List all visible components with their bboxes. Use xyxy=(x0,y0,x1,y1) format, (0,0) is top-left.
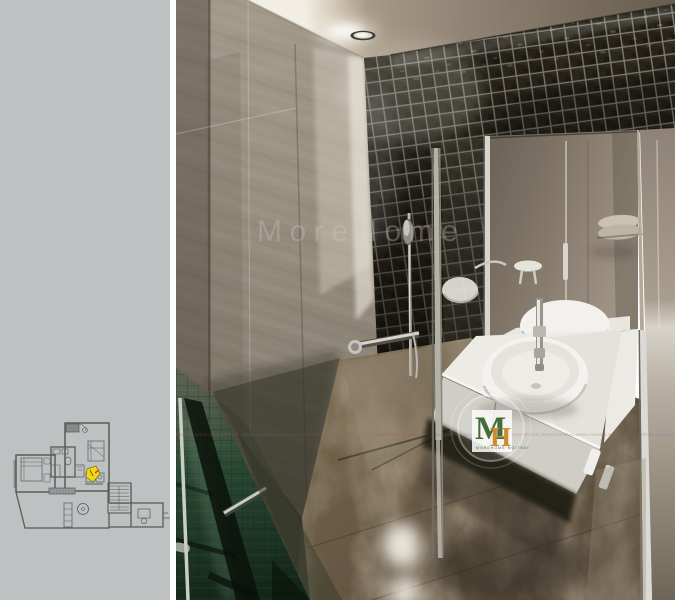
svg-text:MOREHOME.VN - THI CONG NOI THA: MOREHOME.VN - THI CONG NOI THAT - MOREHO… xyxy=(176,433,675,437)
svg-text:M O R E H O M E · N O I T H A: M O R E H O M E · N O I T H A T xyxy=(476,446,530,450)
svg-text:MoreHome: MoreHome xyxy=(257,215,465,248)
